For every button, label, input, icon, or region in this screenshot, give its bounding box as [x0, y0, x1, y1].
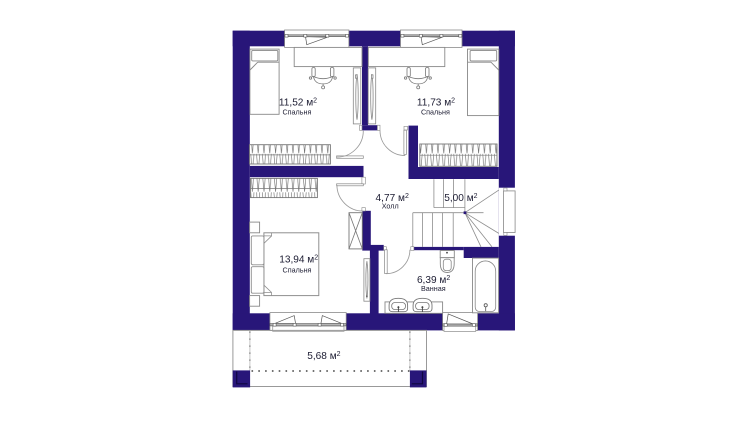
- svg-text:Спальня: Спальня: [421, 107, 450, 116]
- svg-text:Холл: Холл: [382, 202, 399, 211]
- svg-text:5,00 м2: 5,00 м2: [444, 193, 477, 204]
- svg-text:Спальня: Спальня: [282, 107, 311, 116]
- svg-text:5,68 м2: 5,68 м2: [307, 351, 340, 362]
- svg-text:Спальня: Спальня: [283, 265, 312, 274]
- svg-text:13,94 м2: 13,94 м2: [279, 254, 318, 265]
- svg-text:Ванная: Ванная: [421, 284, 446, 293]
